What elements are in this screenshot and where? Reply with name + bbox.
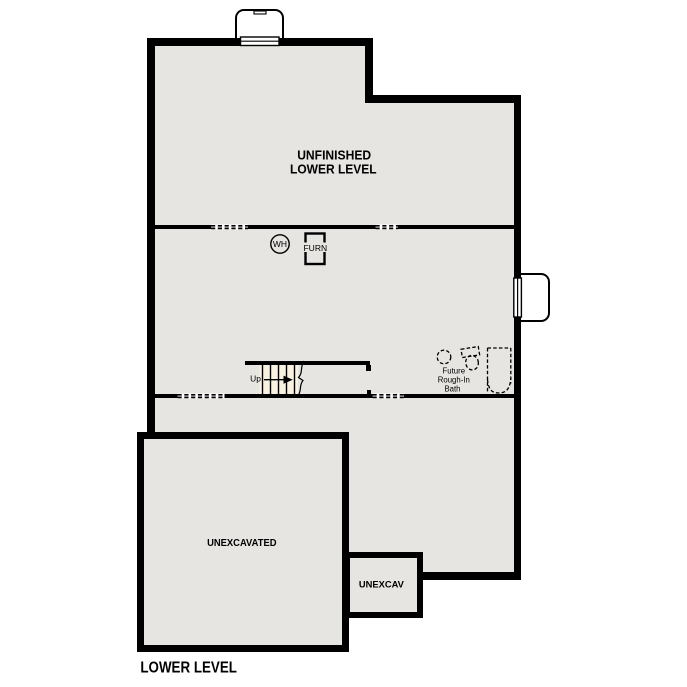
svg-text:Up: Up bbox=[250, 373, 261, 383]
svg-text:LOWER LEVEL: LOWER LEVEL bbox=[290, 162, 377, 177]
svg-text:UNEXCAVATED: UNEXCAVATED bbox=[207, 538, 276, 549]
svg-text:FURN: FURN bbox=[303, 243, 327, 253]
svg-text:Bath: Bath bbox=[444, 384, 460, 393]
svg-text:Rough-In: Rough-In bbox=[438, 376, 470, 385]
svg-text:UNEXCAV: UNEXCAV bbox=[359, 580, 405, 590]
svg-text:UNFINISHED: UNFINISHED bbox=[297, 147, 371, 162]
svg-text:LOWER LEVEL: LOWER LEVEL bbox=[140, 660, 237, 677]
svg-text:WH: WH bbox=[273, 239, 287, 249]
svg-text:Future: Future bbox=[443, 367, 466, 376]
